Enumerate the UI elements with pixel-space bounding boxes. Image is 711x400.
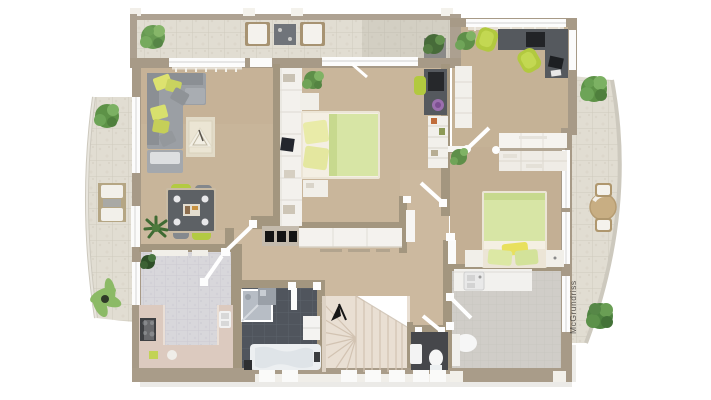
svg-text:McGrundriss: McGrundriss — [568, 280, 578, 334]
